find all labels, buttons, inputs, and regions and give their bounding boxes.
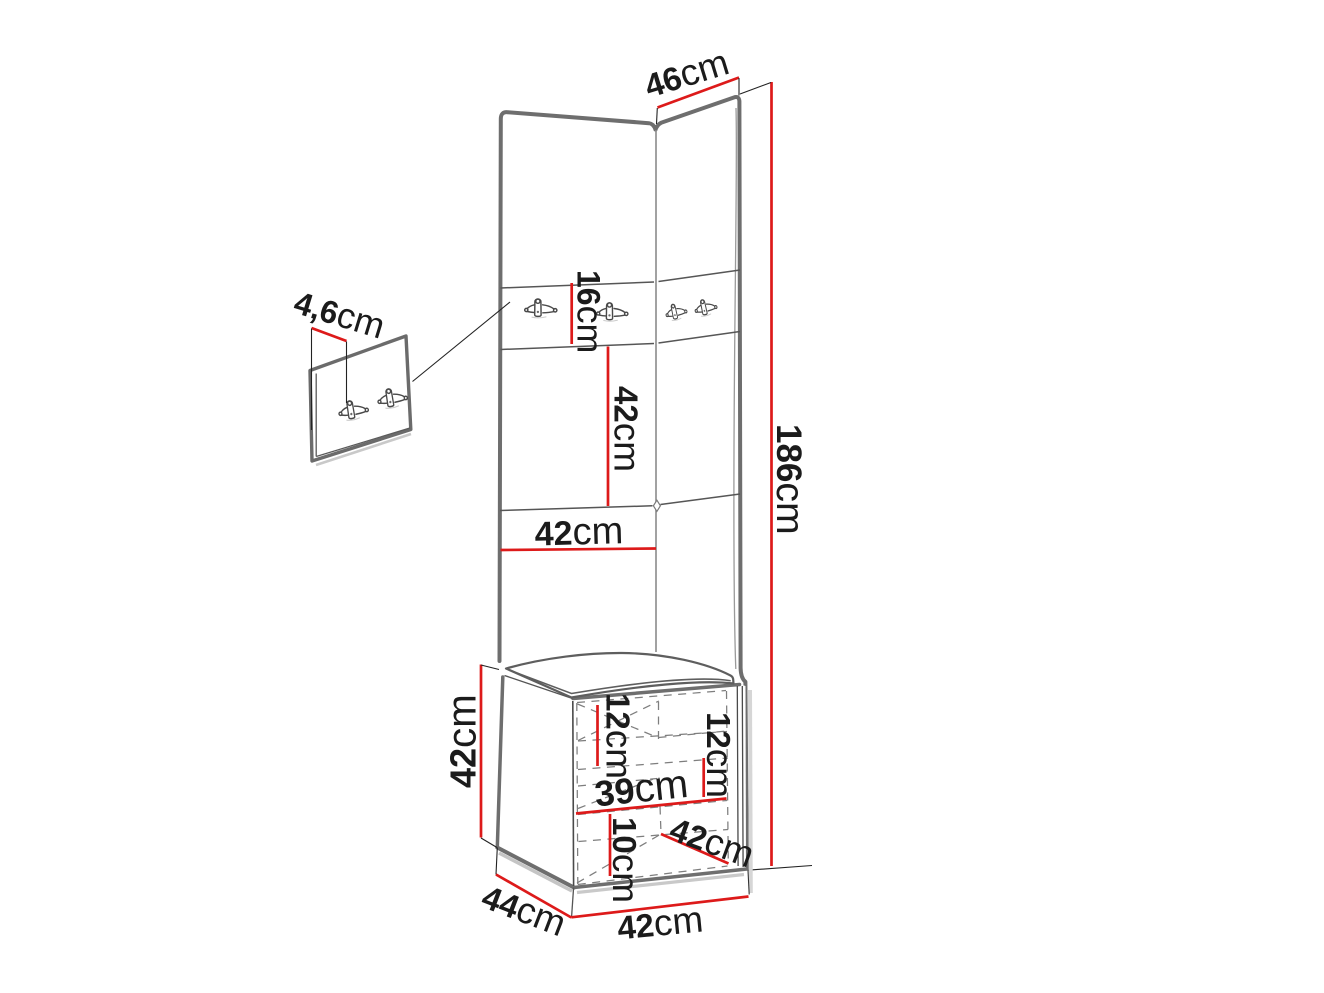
svg-text:16cm: 16cm [570, 270, 610, 353]
svg-text:10cm: 10cm [605, 817, 646, 903]
svg-text:42cm: 42cm [607, 386, 648, 472]
svg-text:186cm: 186cm [768, 424, 811, 535]
svg-text:42cm: 42cm [439, 694, 485, 788]
svg-text:42cm: 42cm [534, 510, 624, 554]
svg-text:12cm: 12cm [699, 712, 740, 798]
